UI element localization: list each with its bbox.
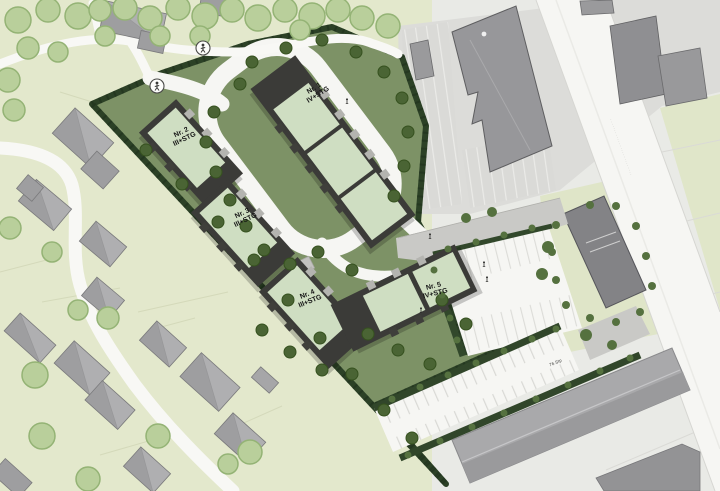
site-plan-svg: Nr. 1 IV+STG Nr. 2 III+STG Nr. 3 III+STG…: [0, 0, 720, 491]
pedestrian-icon: [196, 41, 210, 55]
site-plan-canvas: Nr. 1 IV+STG Nr. 2 III+STG Nr. 3 III+STG…: [0, 0, 720, 491]
pedestrian-icon: [150, 79, 164, 93]
commercial-building-ne1: [610, 16, 666, 104]
commercial-building-ne2: [658, 48, 707, 106]
